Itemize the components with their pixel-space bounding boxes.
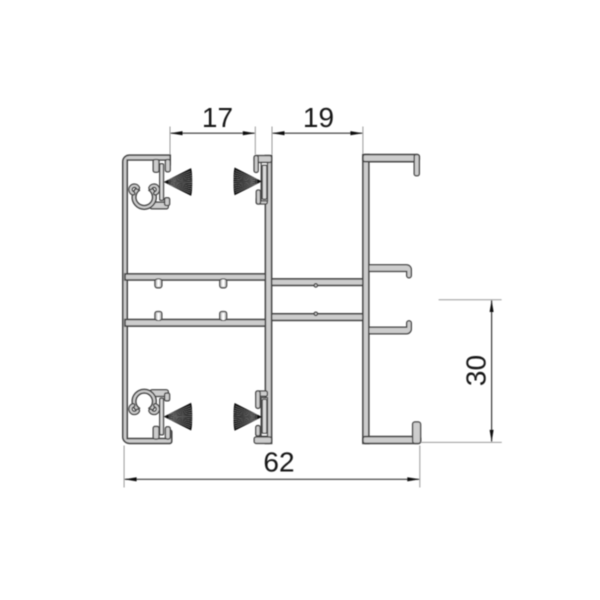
svg-text:30: 30 [461,355,492,386]
svg-text:17: 17 [202,102,233,133]
svg-text:19: 19 [303,102,334,133]
svg-text:62: 62 [263,447,294,478]
